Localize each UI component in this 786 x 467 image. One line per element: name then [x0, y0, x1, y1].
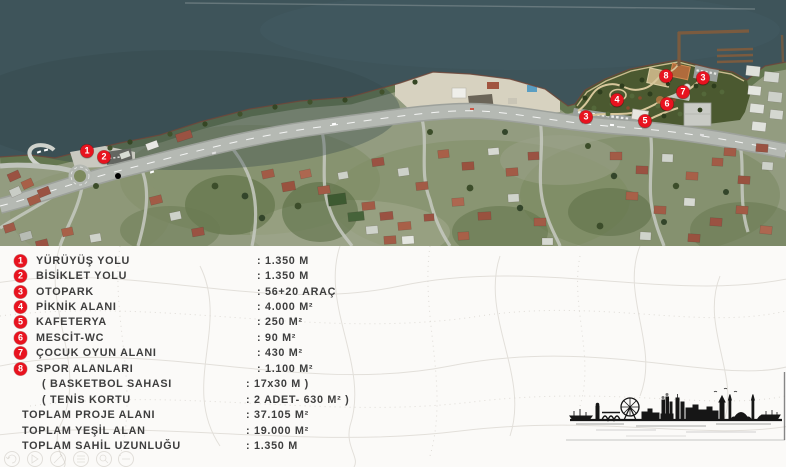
map-marker: 7 [677, 86, 690, 99]
legend-value: : 1.100 M² [257, 363, 313, 375]
map-marker: 1 [81, 145, 94, 158]
legend-value: : 17x30 M ) [246, 378, 309, 390]
legend-list: 1YÜRÜYÜŞ YOLU: 1.350 M2BİSİKLET YOLU: 1.… [0, 253, 430, 454]
legend-badge: 6 [14, 331, 27, 344]
legend-label: YÜRÜYÜŞ YOLU [36, 255, 130, 267]
legend-label: ÇOCUK OYUN ALANI [36, 347, 157, 359]
legend-label: ( BASKETBOL SAHASI [42, 378, 172, 390]
map-marker: 3 [580, 111, 593, 124]
legend-label: TOPLAM YEŞİL ALAN [22, 425, 146, 437]
legend-row: TOPLAM SAHİL UZUNLUĞU: 1.350 M [0, 438, 430, 453]
legend-row: ( TENİS KORTU: 2 ADET- 630 M² ) [0, 392, 430, 407]
legend-value: : 2 ADET- 630 M² ) [246, 394, 349, 406]
legend-badge: 3 [14, 285, 27, 298]
legend-badge: 1 [14, 254, 27, 267]
legend-row: ( BASKETBOL SAHASI: 17x30 M ) [0, 377, 430, 392]
map-marker: 5 [639, 115, 652, 128]
legend-badge: 7 [14, 347, 27, 360]
poster: 123456783 [0, 0, 786, 467]
legend-label: TOPLAM SAHİL UZUNLUĞU [22, 440, 181, 452]
legend-badge: 2 [14, 270, 27, 283]
legend-label: TOPLAM PROJE ALANI [22, 409, 155, 421]
legend-value: : 37.105 M² [246, 409, 309, 421]
map-marker: 3 [697, 72, 710, 85]
legend-label: BİSİKLET YOLU [36, 270, 127, 282]
aerial-map: 123456783 [0, 0, 786, 246]
legend-value: : 19.000 M² [246, 425, 309, 437]
legend-badge: 5 [14, 316, 27, 329]
map-marker: 8 [660, 70, 673, 83]
legend-value: : 1.350 M [257, 255, 309, 267]
legend-row: 4PİKNİK ALANI: 4.000 M² [0, 299, 430, 314]
legend-value: : 1.350 M [246, 440, 298, 452]
map-marker: 6 [661, 98, 674, 111]
legend-row: TOPLAM PROJE ALANI: 37.105 M² [0, 407, 430, 422]
legend-row: 1YÜRÜYÜŞ YOLU: 1.350 M [0, 253, 430, 268]
legend-row: 8SPOR ALANLARI: 1.100 M² [0, 361, 430, 376]
legend-value: : 250 M² [257, 316, 303, 328]
legend-row: 6MESCİT-WC: 90 M² [0, 330, 430, 345]
legend-row: 5KAFETERYA: 250 M² [0, 315, 430, 330]
legend-value: : 56+20 ARAÇ [257, 286, 336, 298]
legend-value: : 90 M² [257, 332, 296, 344]
map-marker: 2 [98, 151, 111, 164]
legend-row: 7ÇOCUK OYUN ALANI: 430 M² [0, 346, 430, 361]
map-marker: 4 [611, 94, 624, 107]
legend-row: 2BİSİKLET YOLU: 1.350 M [0, 268, 430, 283]
legend-value: : 1.350 M [257, 270, 309, 282]
legend-label: PİKNİK ALANI [36, 301, 117, 313]
legend-label: SPOR ALANLARI [36, 363, 133, 375]
legend-label: KAFETERYA [36, 316, 107, 328]
legend-label: ( TENİS KORTU [42, 394, 131, 406]
legend-section: 1YÜRÜYÜŞ YOLU: 1.350 M2BİSİKLET YOLU: 1.… [0, 246, 786, 467]
legend-label: OTOPARK [36, 286, 94, 298]
legend-value: : 430 M² [257, 347, 303, 359]
legend-row: 3OTOPARK: 56+20 ARAÇ [0, 284, 430, 299]
legend-value: : 4.000 M² [257, 301, 313, 313]
legend-label: MESCİT-WC [36, 332, 104, 344]
legend-badge: 8 [14, 362, 27, 375]
map-markers: 123456783 [0, 0, 786, 246]
legend-row: TOPLAM YEŞİL ALAN: 19.000 M² [0, 423, 430, 438]
legend-badge: 4 [14, 301, 27, 314]
